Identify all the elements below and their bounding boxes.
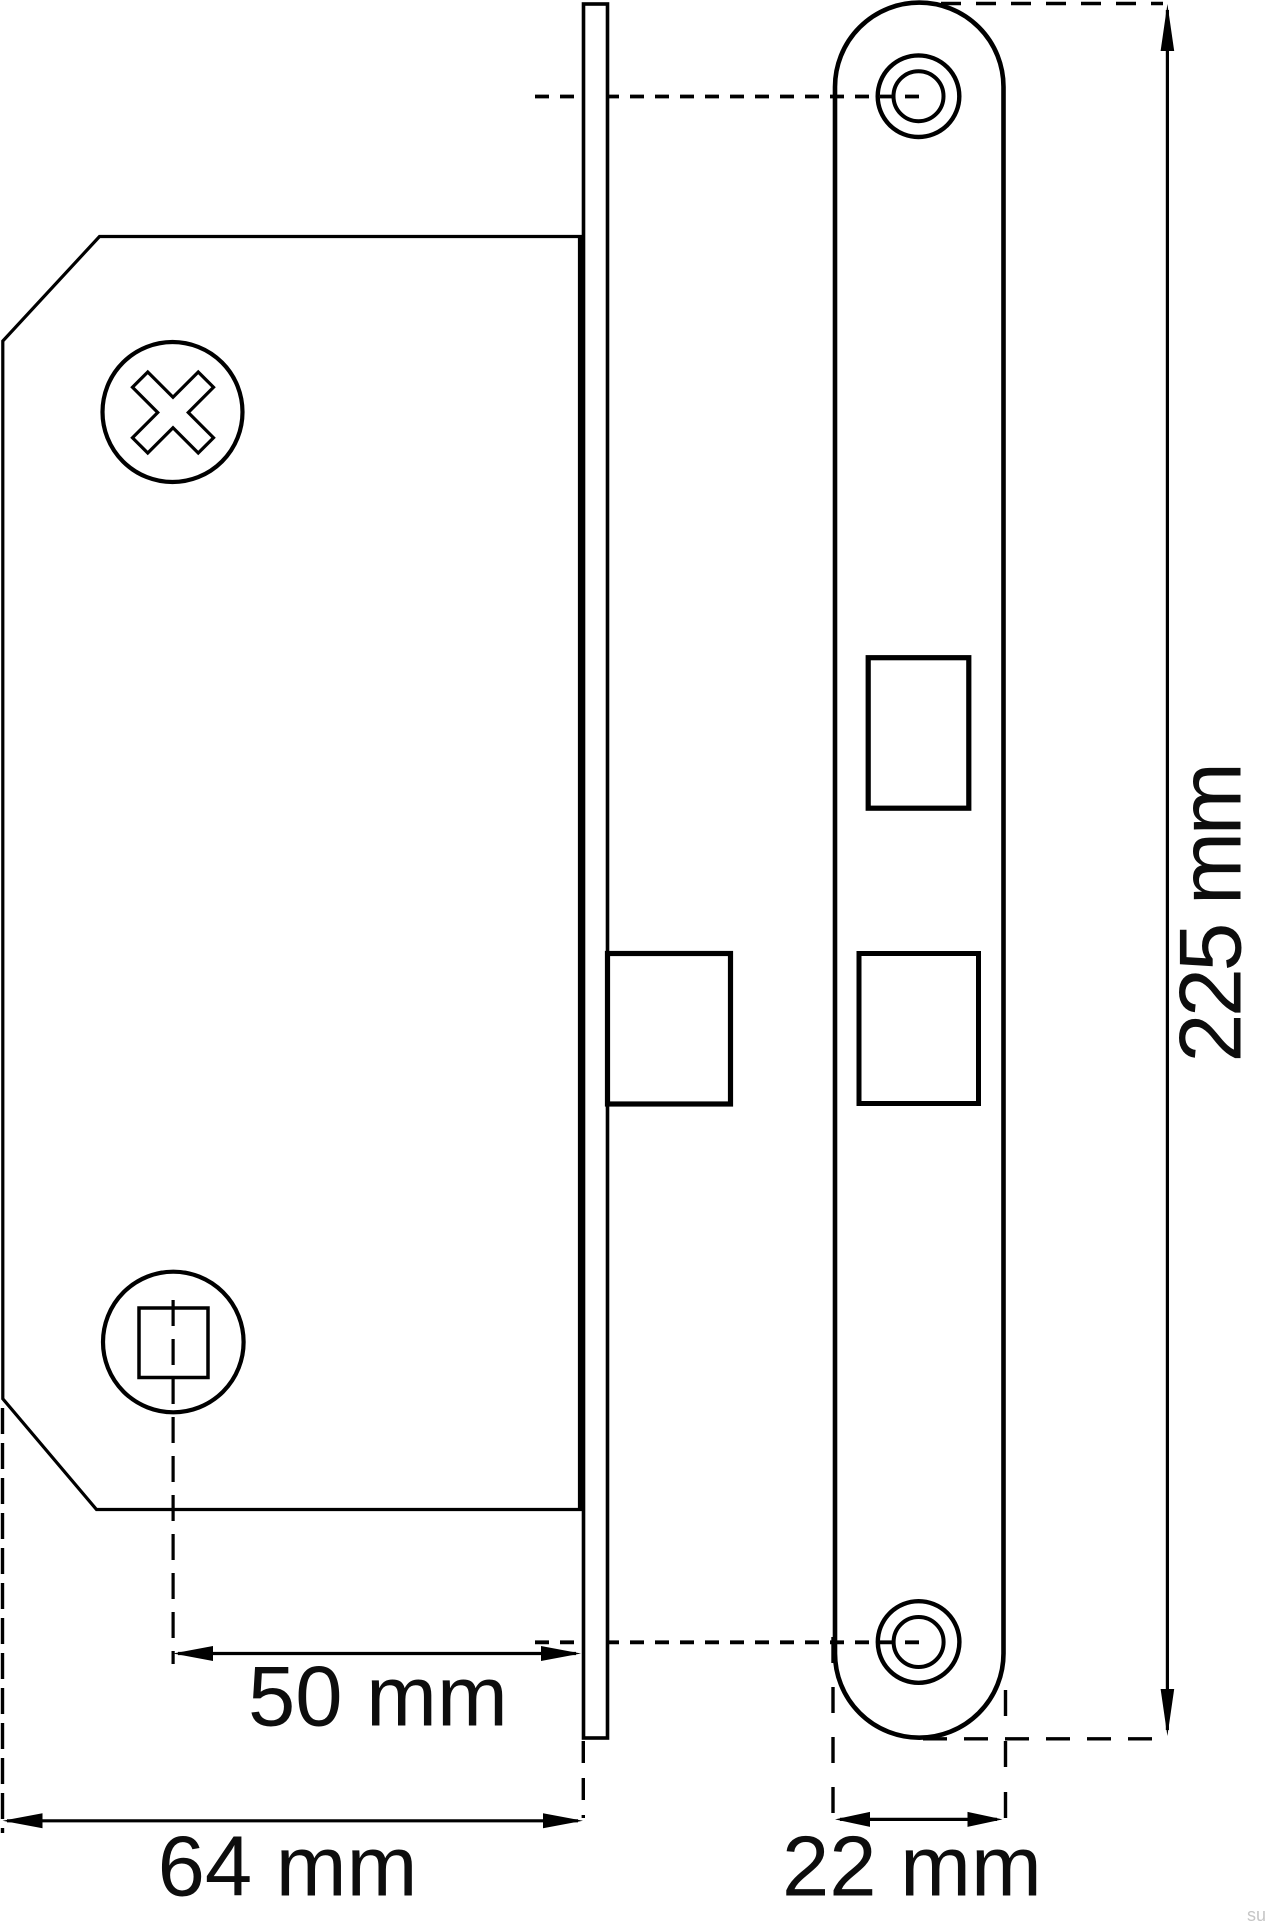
svg-text:22 mm: 22 mm: [782, 1819, 1042, 1914]
svg-text:64 mm: 64 mm: [158, 1819, 418, 1914]
svg-text:su: su: [1247, 1905, 1265, 1922]
svg-text:50 mm: 50 mm: [248, 1650, 508, 1745]
svg-text:225 mm: 225 mm: [1161, 766, 1260, 1063]
